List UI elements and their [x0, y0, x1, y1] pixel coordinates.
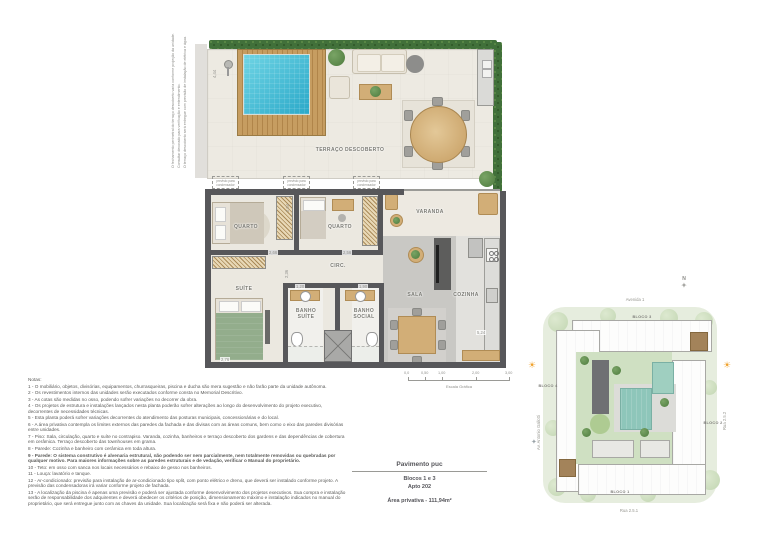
- notes-title: Notas:: [28, 377, 346, 383]
- room-label-sala: SALA: [400, 292, 430, 298]
- windrose-icon: ✦: [531, 438, 537, 446]
- sofa-cushion: [381, 54, 405, 72]
- varanda-chair: [385, 194, 398, 210]
- wall: [205, 189, 211, 368]
- note-item: 1 - O mobiliário, objetos, divisórias, e…: [28, 384, 346, 390]
- scale-tick: [476, 377, 477, 381]
- room-label-cozinha: COZINHA: [442, 292, 490, 298]
- sink-bowl: [482, 60, 492, 69]
- floorplan-sheet: O fechamento perimetral do terraço desco…: [0, 0, 768, 549]
- room-label-quarto1: QUARTO: [226, 224, 266, 230]
- wall: [205, 362, 506, 368]
- tv-screen: [436, 245, 439, 283]
- courtyard-tree: [582, 428, 591, 437]
- note-item: 4 - Os projetos de estrutura e instalaçõ…: [28, 403, 346, 414]
- dim-label: 2,36: [284, 270, 289, 278]
- scale-value: 0,0: [404, 371, 409, 375]
- side-annotation-3: O terraço descoberto será entregue com p…: [183, 36, 187, 168]
- dining-chair: [404, 110, 413, 121]
- note-item: 2 - Os revestimentos internos das unidad…: [28, 390, 346, 396]
- varanda-railing: [404, 189, 500, 191]
- street-label-right: Rua 2.5.2: [722, 412, 727, 430]
- pavimento-title: Pavimento puc: [352, 461, 487, 468]
- pool: [243, 54, 310, 115]
- courtyard-tree: [612, 366, 621, 375]
- courtyard-tree: [660, 398, 669, 407]
- burner: [494, 257, 499, 262]
- blocos-label: Blocos 1 e 3: [352, 476, 487, 482]
- compass-icon: ✦: [676, 281, 692, 290]
- desk-quarto2: [332, 199, 354, 211]
- varanda-bench: [478, 193, 498, 215]
- sun-icon: ☀: [723, 360, 731, 371]
- burner: [494, 251, 499, 256]
- wall: [294, 195, 299, 253]
- desk-stool: [338, 214, 346, 222]
- shower-area: [288, 346, 323, 363]
- wall: [335, 288, 340, 330]
- dim-label: 2,56: [342, 250, 352, 255]
- scale-tick: [408, 377, 409, 381]
- corner-plant-icon: [479, 171, 495, 187]
- site-lawn: [590, 414, 610, 434]
- side-annotation-2: Consultar decorado para verificação e en…: [177, 83, 181, 168]
- terrace-counter: [477, 49, 494, 106]
- fridge: [468, 238, 483, 258]
- side-annotation-1: O fechamento perimetral do terraço desco…: [171, 33, 175, 168]
- plant-icon: [328, 49, 345, 66]
- wall: [379, 283, 384, 362]
- shower-stem: [227, 67, 229, 76]
- sala-chair: [438, 320, 446, 330]
- street-label-top: Avenida 1: [600, 297, 670, 302]
- highlighted-unit-bloco1: [559, 459, 576, 477]
- dining-chair: [404, 146, 413, 157]
- title-divider: [352, 471, 487, 472]
- armchair: [329, 76, 350, 99]
- note-item: 10 - Teto: em osso com sanca nos locais …: [28, 465, 346, 471]
- site-pool-kids: [652, 362, 674, 394]
- scale-tick: [442, 377, 443, 381]
- dim-label: 2,76: [220, 357, 230, 362]
- area-privativa-label: Área privativa - 111,94m²: [352, 498, 487, 504]
- sala-chair: [390, 340, 398, 350]
- building-bloco1: [578, 464, 706, 495]
- scale-tick: [509, 377, 510, 381]
- scale-value: 3,00: [505, 371, 512, 375]
- pillow: [215, 225, 226, 240]
- room-label-suite: SUÍTE: [224, 286, 264, 292]
- apto-label: Apto 202: [352, 484, 487, 490]
- site-tree: [548, 312, 568, 332]
- scale-value: 2,00: [472, 371, 479, 375]
- note-item: 9 - Parede: O sistema construtivo é alve…: [28, 453, 346, 464]
- bed-quarto1: [212, 202, 264, 244]
- courtyard-tree: [640, 428, 649, 437]
- toilet-icon: [366, 332, 378, 347]
- dim-label: 1,90: [358, 284, 368, 289]
- sala-dining-table: [398, 316, 436, 354]
- room-label-circ: CIRC.: [320, 263, 356, 269]
- wall: [500, 191, 506, 368]
- note-item: 5 - Esta planta poderá sofrer variações …: [28, 415, 346, 421]
- tv-panel: [434, 238, 451, 290]
- courtyard-tree: [580, 356, 589, 365]
- sink-icon: [300, 291, 311, 302]
- kitchen-cabinet: [462, 350, 500, 361]
- note-item: 8 - Parede: Cozinha e banheiro com cerâm…: [28, 446, 346, 452]
- dim-label: 1,20: [295, 284, 305, 289]
- wall: [211, 250, 383, 255]
- wall: [205, 189, 404, 195]
- stove: [486, 248, 498, 262]
- dining-chair: [432, 97, 443, 106]
- dim-label: 2,66: [268, 250, 278, 255]
- pillow: [215, 207, 226, 222]
- shower-area: [352, 346, 379, 363]
- sink-bowl: [482, 69, 492, 78]
- bloco1-label: BLOCO 1: [602, 490, 638, 494]
- pillow: [219, 301, 239, 312]
- site-structure: [640, 440, 670, 458]
- shower-icon: [224, 60, 233, 69]
- note-item: 7 - Piso: Sala, circulação, quarto e suí…: [28, 434, 346, 445]
- note-item: 3 - As cotas são medidas no osso, podend…: [28, 397, 346, 403]
- sala-chair: [412, 308, 422, 316]
- neighbor-strip: [195, 44, 207, 178]
- dining-table: [410, 106, 467, 163]
- condenser-box: previsto para condensador: [283, 176, 310, 189]
- sala-plant-icon: [411, 250, 420, 259]
- notes-block: Notas: 1 - O mobiliário, objetos, divisó…: [28, 377, 346, 507]
- condenser-box: previsto para condensador: [212, 176, 239, 189]
- room-label-varanda: VARANDA: [405, 209, 455, 215]
- round-rug: [406, 55, 424, 73]
- hedge-top: [209, 40, 497, 49]
- pillow: [241, 301, 261, 312]
- note-item: 12 - Ar-condicionado: previsão para inst…: [28, 478, 346, 489]
- room-label-banho-suite: BANHO SUÍTE: [293, 308, 319, 320]
- toilet-icon: [291, 332, 303, 347]
- pillow: [303, 200, 325, 211]
- room-label-quarto2: QUARTO: [320, 224, 360, 230]
- wardrobe-suite: [212, 256, 266, 269]
- sala-chair: [390, 320, 398, 330]
- site-dark-building: [592, 360, 609, 414]
- sofa-cushion: [357, 54, 381, 72]
- room-label-banho-social: BANHO SOCIAL: [350, 308, 378, 320]
- sun-icon: ☀: [528, 360, 536, 371]
- wardrobe-quarto2: [362, 196, 378, 246]
- shaft: [324, 330, 352, 362]
- dim-label: 5,24: [476, 330, 486, 335]
- note-item: 11 - Louça: lavatório e tanque.: [28, 471, 346, 477]
- dim-terrace: 4,44: [212, 70, 217, 78]
- suite-bench: [265, 310, 270, 344]
- sala-chair: [438, 340, 446, 350]
- bloco3-label: BLOCO 3: [620, 315, 664, 319]
- wardrobe-quarto1: [276, 196, 293, 240]
- table-plant-icon: [370, 86, 381, 97]
- scale-tick: [425, 377, 426, 381]
- note-item: 13 - A localização da piscina é apenas u…: [28, 490, 346, 507]
- street-label-bottom: Rua 2.5.1: [606, 508, 652, 513]
- room-label-terraco: TERRAÇO DESCOBERTO: [315, 147, 385, 153]
- highlighted-unit-bloco3: [690, 332, 708, 351]
- blanket: [216, 313, 263, 360]
- bed-quarto2: [300, 197, 326, 239]
- scale-value: 0,50: [421, 371, 428, 375]
- varanda-plant-icon: [393, 217, 400, 224]
- wall: [378, 195, 383, 253]
- scale-value: 1,00: [438, 371, 445, 375]
- scale-caption: Escala Gráfica: [408, 384, 510, 389]
- condenser-box: previsto para condensador: [353, 176, 380, 189]
- bloco4-label: BLOCO 4: [533, 384, 563, 388]
- site-structure: [592, 440, 634, 458]
- bed-suite: [215, 298, 263, 360]
- sink-icon: [355, 291, 366, 302]
- scale-bar: [408, 380, 510, 381]
- wall: [283, 283, 288, 362]
- site-pool: [620, 388, 652, 430]
- dim-label: 2,04: [285, 204, 290, 212]
- note-item: 6 - A área privativa contempla os limite…: [28, 422, 346, 433]
- terrace-sofa: [352, 49, 407, 74]
